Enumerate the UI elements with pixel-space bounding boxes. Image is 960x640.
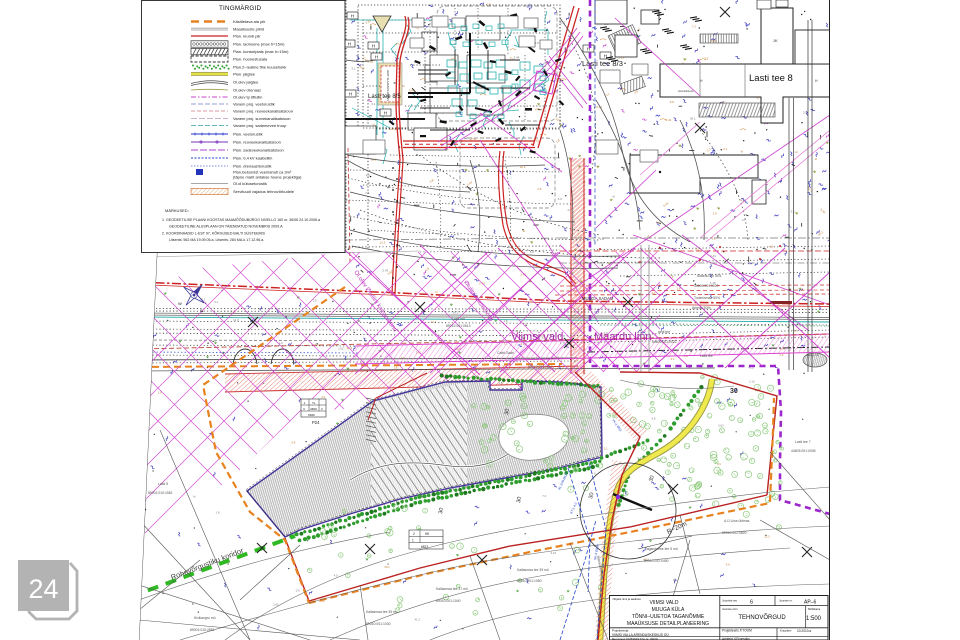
svg-text:2: 2 [321,407,323,411]
svg-text:GEODEETILINE ALUSPLAAN ON TÄIE: GEODEETILINE ALUSPLAAN ON TÄIENDATUD NOV… [169,225,283,229]
svg-text:aedl tee: aedl tee [658,330,670,334]
svg-text:30: 30 [438,507,445,514]
svg-text:3.1: 3.1 [791,210,796,214]
svg-text:Plan. sadeveekanalisatsioon: Plan. sadeveekanalisatsioon [233,147,284,152]
svg-text:Viimsi vald: Viimsi vald [511,331,563,343]
svg-text:1.8: 1.8 [537,187,542,191]
svg-text:89010:001:1030: 89010:001:1030 [366,622,391,626]
svg-text:Plan. krundi piir: Plan. krundi piir [233,33,261,38]
svg-text:Kuupäev: Kuupäev [780,629,792,633]
svg-text:1.8: 1.8 [535,41,540,45]
svg-text:Servituudi vajadus tehnovõrkud: Servituudi vajadus tehnovõrkudele [233,189,295,194]
svg-text:Kallasmaa tee 37 mü: Kallasmaa tee 37 mü [436,587,468,591]
svg-text:W: W [178,301,182,306]
svg-text:Vanem proj. veetorustik: Vanem proj. veetorustik [233,101,275,106]
svg-text:5.8: 5.8 [670,100,675,104]
svg-text:7.2: 7.2 [692,25,697,29]
svg-text:41.2: 41.2 [415,617,421,621]
svg-text:Plan. hoonestusala: Plan. hoonestusala [233,56,268,61]
svg-text:kl: kl [523,229,526,233]
svg-text:44603:001:0022: 44603:001:0022 [652,340,677,344]
svg-text:kl: kl [795,150,798,154]
svg-text:2.43: 2.43 [382,268,388,272]
svg-text:Vanem proj. sademevee truup: Vanem proj. sademevee truup [233,123,287,128]
svg-text:Objekti nimi ja aadress: Objekti nimi ja aadress [613,597,642,601]
svg-text:4.0: 4.0 [321,395,325,399]
svg-text:Plan.2–realine tihe kuusehekk: Plan.2–realine tihe kuusehekk [233,64,286,69]
svg-text:Plan. kontoriplats (max h=15m): Plan. kontoriplats (max h=15m) [233,49,289,54]
svg-text:Maardu linn: Maardu linn [594,331,651,343]
svg-text:30: 30 [504,408,511,415]
svg-text:2. KOORDINAADID L-EST 97, KÕR: 2. KOORDINAADID L-EST 97, KÕRGUSED BALTI… [162,231,266,236]
svg-text:2: 2 [413,532,415,536]
svg-text:Vanem proj. reoveekanalisatsio: Vanem proj. reoveekanalisatsioon [233,108,293,113]
svg-text:Lasti tee 8/5: Lasti tee 8/5 [368,94,401,100]
svg-text:1.15: 1.15 [749,379,755,383]
svg-text:7.2: 7.2 [542,494,546,498]
svg-text:3.1: 3.1 [671,357,675,361]
svg-text:3.1: 3.1 [604,446,608,450]
svg-text:A.Ü Liiva üldmas: A.Ü Liiva üldmas [724,519,750,523]
svg-text:Projekteeris P.TOOM: Projekteeris P.TOOM [722,629,752,633]
svg-text:Kallasmaa tee 39 mü: Kallasmaa tee 39 mü [517,568,549,572]
svg-text:Lasti 8: Lasti 8 [158,482,168,486]
svg-text:5.8: 5.8 [803,111,808,115]
svg-text:Plan. veetorustik: Plan. veetorustik [233,131,263,136]
svg-text:1.8: 1.8 [216,510,220,514]
svg-text:89010:001:1050: 89010:001:1050 [517,579,542,583]
svg-text:6826: 6826 [308,413,315,417]
svg-text:kl: kl [387,562,389,566]
svg-text:89001:010:2891: 89001:010:2891 [190,628,215,632]
svg-text:44603:001:0008: 44603:001:0008 [791,449,816,453]
svg-text:H: H [351,13,354,18]
svg-text:Lasti tee 8: Lasti tee 8 [749,73,793,84]
svg-text:30.1: 30.1 [690,117,696,121]
svg-text:2.9: 2.9 [704,57,709,61]
svg-text:Kallasmaa tee 35 mü: Kallasmaa tee 35 mü [366,610,398,614]
svg-text:Plan. jalgtee: Plan. jalgtee [233,71,256,76]
svg-text:H: H [372,43,375,48]
svg-text:kl: kl [741,150,744,154]
svg-text:3.1: 3.1 [351,66,356,70]
svg-text:4600: 4600 [310,407,317,411]
svg-text:Lasti tee: Lasti tee [700,354,713,358]
svg-text:5.8: 5.8 [291,441,295,445]
svg-text:2.43: 2.43 [591,134,597,138]
svg-text:89010:002:0450: 89010:002:0450 [644,559,669,563]
svg-text:Maaüksuste piirid: Maaüksuste piirid [233,26,264,31]
svg-text:tootmishoone: tootmishoone [678,89,694,93]
svg-text:1:500: 1:500 [806,616,822,622]
svg-text:89012:001:0613: 89012:001:0613 [446,324,471,328]
svg-text:Plan. drenaazitorustik: Plan. drenaazitorustik [233,163,271,168]
svg-text:3.1: 3.1 [723,147,728,151]
svg-text:2.62: 2.62 [338,347,344,351]
svg-text:kl: kl [402,84,405,88]
svg-text:89012:001:0014: 89012:001:0014 [528,365,553,369]
svg-text:Jooniste arv: Jooniste arv [722,599,738,603]
svg-text:H: H [375,54,378,59]
svg-text:H: H [348,41,351,46]
svg-text:2.62: 2.62 [718,424,724,428]
svg-text:H: H [349,91,352,96]
svg-text:Joonise nimi: Joonise nimi [722,607,738,611]
svg-text:3.1: 3.1 [371,102,376,106]
svg-text:0.6: 0.6 [726,563,730,567]
svg-text:P24: P24 [312,420,320,425]
svg-text:Plan. reoveekanalisatsioon: Plan. reoveekanalisatsioon [233,139,281,144]
svg-text:1. GEODEETILISE PLAANI KOOSTA: 1. GEODEETILISE PLAANI KOOSTAS MAAMÕÕDUB… [162,217,320,222]
svg-text:30: 30 [516,496,523,503]
svg-text:2.9: 2.9 [313,299,317,303]
svg-text:Taganõmme tee 5 mü: Taganõmme tee 5 mü [645,547,678,551]
svg-text:12.3: 12.3 [764,535,770,539]
svg-text:TL: TL [312,401,316,405]
svg-text:(täpne maht antakse hoone proj: (täpne maht antakse hoone projektiga) [233,174,302,179]
svg-text:kl: kl [613,195,616,199]
svg-text:MÄRKUSED:: MÄRKUSED: [165,208,189,213]
svg-text:Ol.olev drenaaz: Ol.olev drenaaz [233,87,261,92]
svg-text:3.44: 3.44 [666,118,672,122]
svg-text:0.6: 0.6 [794,328,798,332]
svg-text:4.0: 4.0 [334,574,338,578]
svg-text:Mõõtkava: Mõõtkava [808,607,821,611]
svg-text:10.2010.a: 10.2010.a [797,629,811,633]
svg-text:2.9: 2.9 [713,212,718,216]
svg-text:AP–6: AP–6 [804,600,816,606]
svg-text:Käsitletava ala piir: Käsitletava ala piir [233,19,266,24]
svg-text:H: H [384,110,387,115]
svg-text:Vanem proj. survekanalisatsioo: Vanem proj. survekanalisatsioon [233,116,291,121]
svg-text:12.3: 12.3 [431,320,437,324]
svg-text:89010:002:0620: 89010:002:0620 [722,531,747,535]
svg-text:30.1: 30.1 [453,311,459,315]
svg-text:Cadri-Sadri: Cadri-Sadri [497,351,514,355]
svg-text:2.43: 2.43 [710,254,716,258]
svg-text:89010:001:1040: 89010:001:1040 [436,599,461,603]
svg-text:Ol.olev tp Øtuliin: Ol.olev tp Øtuliin [233,94,262,99]
svg-text:Kivikangru mü: Kivikangru mü [194,616,216,620]
svg-text:2.43: 2.43 [551,551,557,555]
svg-text:MAAÜKSUSE DETAILPLANEERING: MAAÜKSUSE DETAILPLANEERING [627,620,709,627]
svg-text:kl: kl [815,157,818,161]
svg-text:3.1: 3.1 [214,300,218,304]
svg-text:MUUGA KÜLA: MUUGA KÜLA [652,606,685,613]
svg-text:Lasti tee 7: Lasti tee 7 [795,440,811,444]
svg-text:Ol.ol kütusetorustik: Ol.ol kütusetorustik [233,181,267,186]
svg-text:TINGMÄRGID: TINGMÄRGID [219,4,261,12]
svg-text:3.44: 3.44 [514,55,520,59]
svg-text:Ärimaa 50%: Ärimaa 50% [692,306,710,310]
svg-text:0.6: 0.6 [296,589,300,593]
svg-text:7.2: 7.2 [365,191,370,195]
svg-text:JK: JK [773,38,778,43]
svg-text:4.0: 4.0 [558,197,563,201]
svg-text:TÕNNI–UUETOA TAGANÕMME: TÕNNI–UUETOA TAGANÕMME [632,613,705,620]
svg-text:Plan. laohoone (max h=15m): Plan. laohoone (max h=15m) [233,41,285,46]
svg-text:Litsents: 562 MA 19.09.05.a.: Litsents: 562 MA 19.09.05.a. Litsents: 2… [169,238,264,242]
svg-text:Plan. 0,4 kV kaabelliin: Plan. 0,4 kV kaabelliin [233,155,272,160]
svg-text:44603:001:0029: 44603:001:0029 [694,284,719,288]
svg-text:Lasti mü: Lasti mü [452,317,465,321]
svg-text:S: S [200,308,203,313]
svg-text:5.8: 5.8 [652,416,656,420]
svg-text:Tootmismaa 50%: Tootmismaa 50% [694,296,720,300]
svg-text:6: 6 [750,600,753,606]
svg-text:0.6: 0.6 [656,221,661,225]
svg-text:89001:010:1581: 89001:010:1581 [148,491,173,495]
svg-text:TEHNOVÕRGUD: TEHNOVÕRGUD [738,614,786,621]
svg-text:VIIMSI VALD: VIIMSI VALD [649,600,678,606]
svg-text:1: 1 [304,401,306,405]
svg-text:24: 24 [28,574,58,604]
svg-text:3: 3 [303,407,305,411]
svg-text:1: 1 [412,539,414,543]
svg-text:30: 30 [730,388,738,395]
svg-text:Ol.olev jalgtee: Ol.olev jalgtee [233,79,259,84]
svg-text:Joonise nr.: Joonise nr. [779,599,793,603]
svg-text:kl: kl [742,218,745,222]
svg-text:12.3: 12.3 [380,241,386,245]
